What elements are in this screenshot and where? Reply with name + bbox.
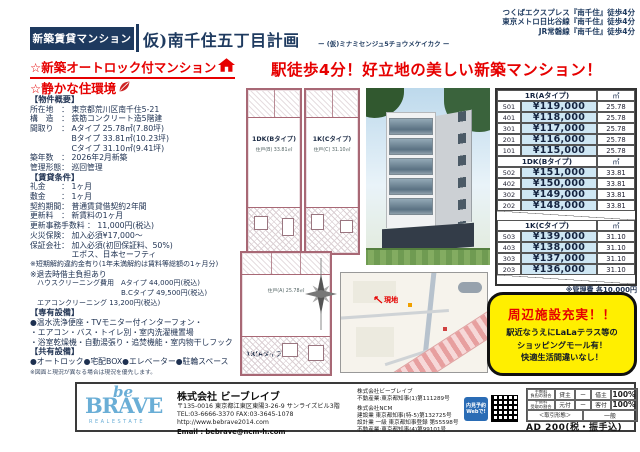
highlight-line: 快適生活間違いなし！	[490, 351, 634, 364]
spec-line: 更新事務手数料 ： 11,000円(税込)	[30, 221, 250, 231]
price-row: 202 ¥148,000 33.81	[497, 200, 635, 211]
room-area: 31.10	[597, 253, 635, 264]
station-access-line: つくばエクスプレス『南千住』徒歩4分	[415, 8, 635, 17]
price-row: 501 ¥119,000 25.78	[497, 101, 635, 112]
room-number: 501	[497, 101, 521, 112]
station-access-list: つくばエクスプレス『南千住』徒歩4分 東京メトロ日比谷線『南千住』徒歩4分 JR…	[415, 8, 635, 36]
spec-line: 保証会社： 加入必須(初回保証料、50%)	[30, 241, 250, 251]
spec-line: 築年数 ： 2026年2月新築	[30, 153, 250, 163]
leaf-icon	[118, 80, 131, 96]
room-area: 31.10	[597, 231, 635, 242]
table-separator	[497, 275, 635, 284]
fee-row: 手数料負担の割合 貸主 ー 借主 100%	[527, 389, 637, 400]
company-name: 株式会社 ビーブレイブ	[177, 388, 355, 403]
rent-price: ¥137,000	[521, 253, 597, 264]
room-area: 31.10	[597, 264, 635, 275]
area-unit-label: ㎡	[597, 220, 635, 231]
highlight-line: ショッピングモール有！	[490, 339, 634, 352]
room-area: 25.78	[597, 145, 635, 156]
building-rendering	[366, 88, 490, 265]
unit-type-label: 1DK(Bタイプ)	[497, 156, 597, 167]
table-separator	[497, 211, 635, 220]
spec-line: 契約期間： 普通賃貸借契約2年間	[30, 202, 250, 212]
spec-note: ※短期解約違約金有り(1年未満解約は賃料等総額の1ヶ月分)	[30, 260, 250, 270]
price-row: 502 ¥151,000 33.81	[497, 167, 635, 178]
room-number: 301	[497, 123, 521, 134]
section-heading: 【物件概要】	[30, 95, 250, 105]
rent-price: ¥115,000	[521, 145, 597, 156]
spec-line: 所在地 ： 東京都荒川区南千住5-21	[30, 105, 250, 115]
room-number: 302	[497, 189, 521, 200]
rent-price: ¥116,000	[521, 134, 597, 145]
area-unit-label: ㎡	[597, 156, 635, 167]
disclaimer-line: ※図面と現況が異なる場合は現況を優先します。	[30, 369, 250, 379]
spec-line: 構 造 ： 鉄筋コンクリート造5階建	[30, 114, 250, 124]
section-heading: 【賃貸条件】	[30, 173, 250, 183]
fee-label: 手数料負担の割合	[527, 389, 555, 400]
fee-cell: 借主	[591, 389, 611, 400]
room-area: 31.10	[597, 242, 635, 253]
price-row: 503 ¥139,000 31.10	[497, 231, 635, 242]
floorplan-balcony-hatch	[306, 207, 358, 253]
logo-name-text: BRAVE	[85, 393, 162, 418]
rent-price: ¥149,000	[521, 189, 597, 200]
badge-line: Webで!	[466, 409, 486, 415]
rent-price: ¥138,000	[521, 242, 597, 253]
balcony-band	[389, 138, 433, 155]
room-area: 25.78	[597, 112, 635, 123]
fee-table: 手数料負担の割合 貸主 ー 借主 100% 手数料受取の割合 元付 ー 客付 1…	[526, 388, 638, 422]
spec-line: ・エアコン・バス・トイレ別・室内洗濯機置場	[30, 328, 250, 338]
company-logo: be BRAVE REALESTATE	[83, 386, 171, 430]
map-marker: 現地	[373, 295, 398, 306]
room-area: 33.81	[597, 200, 635, 211]
footer: be BRAVE REALESTATE 株式会社 ビーブレイブ 〒135-001…	[75, 382, 636, 432]
balcony-band	[389, 178, 433, 195]
fee-row: ＜取引形態＞ 一般	[527, 410, 637, 421]
rent-price: ¥118,000	[521, 112, 597, 123]
fee-cell: 元付	[555, 400, 575, 411]
station-access-line: 東京メトロ日比谷線『南千住』徒歩4分	[415, 17, 635, 26]
section-heading: 【専有設備】	[30, 308, 250, 318]
floorplan-rooms-strip	[306, 90, 358, 118]
logo-tagline: REALESTATE	[89, 419, 145, 425]
floorplan-label: 1DK(Bタイプ)	[248, 134, 300, 143]
highlight-title: 周辺施設充実！！	[490, 304, 634, 323]
company-email: Email : bebrave@ncm-h.com	[177, 428, 355, 436]
room-number: 401	[497, 112, 521, 123]
station-access-line: JR常磐線『南千住』徒歩4分	[415, 27, 635, 36]
spec-line: 火災保険： 加入必須¥17,000～	[30, 231, 250, 241]
spec-line: 更新料 ： 新賃料の1ヶ月	[30, 211, 250, 221]
map-road	[340, 309, 449, 320]
spec-line: Bタイプ 33.81㎡(10.23坪)	[30, 134, 250, 144]
fee-label: 手数料受取の割合	[527, 400, 555, 411]
room-area: 33.81	[597, 189, 635, 200]
room-number: 502	[497, 167, 521, 178]
room-number: 503	[497, 231, 521, 242]
map-block	[356, 327, 394, 357]
room-area: 25.78	[597, 134, 635, 145]
unit-type-label: 1R(Aタイプ)	[497, 90, 597, 101]
company-info: 株式会社 ビーブレイブ 〒135-0016 東京都江東区東陽3-26-9 サンラ…	[177, 388, 355, 436]
title-kana-subtitle: ー (仮)ミナミセンジュ5チョウメケイカク ー	[318, 38, 449, 48]
spec-line: ハウスクリーニング費用 Aタイプ 44,000円(税込)	[30, 279, 250, 289]
floorplan-label: 1K(Cタイプ)	[306, 134, 358, 143]
floorplan-balcony-hatch	[242, 336, 330, 374]
rent-price: ¥136,000	[521, 264, 597, 275]
feature-label: ☆新築オートロック付マンション	[30, 57, 216, 76]
price-row: 401 ¥118,000 25.78	[497, 112, 635, 123]
highlight-body: 駅近なうえにLaLaテラス等の ショッピングモール有！ 快適生活間違いなし！	[490, 326, 634, 364]
price-row: 303 ¥137,000 31.10	[497, 253, 635, 264]
web-reservation-badge: 内見予約 Webで!	[464, 397, 488, 421]
floorplan-area-text: 住戸(B) 33.81㎡	[248, 146, 300, 153]
fee-cell: 貸主	[555, 389, 575, 400]
spec-line: 間取り ： Aタイプ 25.78㎡(7.80坪)	[30, 124, 250, 134]
rent-price: ¥119,000	[521, 101, 597, 112]
marker-label: 現地	[384, 295, 398, 305]
floorplan-balcony-hatch	[248, 207, 300, 253]
highlight-box: 周辺施設充実！！ 駅近なうえにLaLaテラス等の ショッピングモール有！ 快適生…	[487, 292, 637, 376]
price-row: 101 ¥115,000 25.78	[497, 145, 635, 156]
spec-note: ※退去時借主負担あり	[30, 270, 250, 280]
company-url: http://www.bebrave2014.com	[177, 419, 355, 427]
spec-line: Cタイプ 31.10㎡(9.41坪)	[30, 144, 250, 154]
license-line: 不動産業:東京都知事(4)第99101号	[357, 427, 489, 434]
flyer-page: 新築賃貸マンション 仮)南千住五丁目計画 ー (仮)ミナミセンジュ5チョウメケイ…	[0, 0, 640, 452]
room-area: 33.81	[597, 167, 635, 178]
spec-line: 礼金 ： 1ヶ月	[30, 182, 250, 192]
fee-cell: 100%	[611, 389, 637, 400]
transaction-type-label: ＜取引形態＞	[527, 410, 583, 421]
room-number: 402	[497, 178, 521, 189]
rent-price: ¥139,000	[521, 231, 597, 242]
floorplan-rooms-strip	[248, 90, 300, 118]
price-row: 301 ¥117,000 25.78	[497, 123, 635, 134]
grass-strip	[366, 248, 490, 265]
spec-line: ●オートロック●宅配BOX●エレベーター●駐輪スペース	[30, 357, 250, 367]
highlight-line: 駅近なうえにLaLaテラス等の	[490, 326, 634, 339]
room-number: 201	[497, 134, 521, 145]
building-side-face	[436, 110, 472, 228]
house-icon	[218, 58, 235, 75]
price-section-header: 1K(Cタイプ) ㎡	[497, 220, 635, 231]
feature-autolock: ☆新築オートロック付マンション	[30, 57, 235, 79]
spec-line: ●温水洗浄便座・TVモニター付インターフォン・	[30, 318, 250, 328]
spec-line: 敷金 ： 1ヶ月	[30, 192, 250, 202]
section-heading: 【共有設備】	[30, 347, 250, 357]
transaction-type-value: 一般	[583, 410, 637, 421]
price-section-header: 1DK(Bタイプ) ㎡	[497, 156, 635, 167]
marker-arrow-icon	[373, 295, 383, 306]
building-front-face	[386, 112, 436, 228]
area-unit-label: ㎡	[597, 90, 635, 101]
company-tel-fax: TEL:03-6666-3370 FAX:03-3645-1078	[177, 411, 355, 419]
balcony-band	[389, 198, 433, 215]
building-title: 仮)南千住五丁目計画	[143, 27, 300, 51]
license-line: 株式会社ビーブレイブ	[357, 389, 489, 396]
balcony-band	[389, 158, 433, 175]
balcony-band	[389, 118, 433, 135]
fee-cell: ー	[575, 389, 591, 400]
room-number: 303	[497, 253, 521, 264]
room-number: 203	[497, 264, 521, 275]
company-address: 〒135-0016 東京都江東区東陽3-26-9 サンライズビル3階	[177, 403, 355, 411]
room-area: 33.81	[597, 178, 635, 189]
room-area: 25.78	[597, 101, 635, 112]
catch-copy: 駅徒歩4分！好立地の美しい新築マンション！	[271, 58, 602, 80]
map-station	[458, 282, 482, 293]
floorplan-area-text: 住戸(C) 31.10㎡	[306, 146, 358, 153]
fee-cell: 客付	[591, 400, 611, 411]
rent-price: ¥150,000	[521, 178, 597, 189]
room-area: 25.78	[597, 123, 635, 134]
spec-line: エポス、日本セーフティ	[30, 250, 250, 260]
price-row: 402 ¥150,000 33.81	[497, 178, 635, 189]
spec-line: B.Cタイプ 49,500円(税込)	[30, 289, 250, 299]
floorplan-c: 1K(Cタイプ) 住戸(C) 31.10㎡	[304, 88, 360, 255]
unit-type-label: 1K(Cタイプ)	[497, 220, 597, 231]
rent-price: ¥117,000	[521, 123, 597, 134]
location-map: 現地	[340, 272, 488, 373]
map-poi-dot	[443, 327, 447, 331]
property-spec-column: 【物件概要】 所在地 ： 東京都荒川区南千住5-21 構 造 ： 鉄筋コンクリー…	[30, 95, 250, 378]
header-badge: 新築賃貸マンション	[30, 27, 134, 50]
ad-label: AD 200(税・振手込)	[526, 420, 622, 433]
map-poi-dot	[408, 303, 412, 307]
fee-cell: 100%	[611, 400, 637, 411]
compass-rose-icon	[303, 256, 339, 336]
fee-row: 手数料受取の割合 元付 ー 客付 100%	[527, 400, 637, 411]
price-row: 403 ¥138,000 31.10	[497, 242, 635, 253]
price-row: 201 ¥116,000 25.78	[497, 134, 635, 145]
price-row: 302 ¥149,000 33.81	[497, 189, 635, 200]
rent-price: ¥148,000	[521, 200, 597, 211]
price-section-header: 1R(Aタイプ) ㎡	[497, 90, 635, 101]
room-number: 202	[497, 200, 521, 211]
qr-code	[491, 395, 518, 422]
price-row: 203 ¥136,000 31.10	[497, 264, 635, 275]
rent-price: ¥151,000	[521, 167, 597, 178]
room-number: 403	[497, 242, 521, 253]
floorplan-b: 1DK(Bタイプ) 住戸(B) 33.81㎡	[246, 88, 302, 255]
license-line: 設計業 一級 東京都知事登録 第55598号	[357, 420, 489, 427]
room-number: 101	[497, 145, 521, 156]
fee-cell: ー	[575, 400, 591, 411]
price-table: 1R(Aタイプ) ㎡ 501 ¥119,000 25.78 401 ¥118,0…	[495, 88, 637, 286]
header-divider	[136, 24, 139, 52]
